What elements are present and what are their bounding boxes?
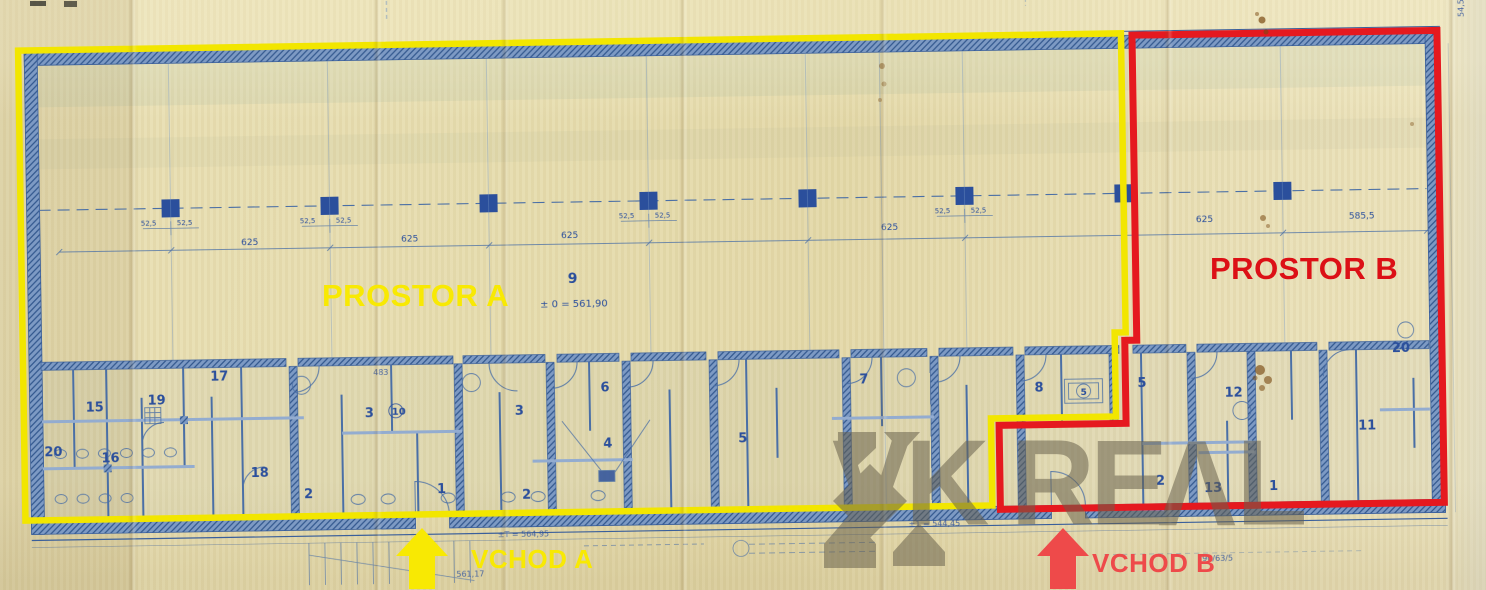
room-number: 17 bbox=[210, 369, 228, 384]
plan-note: ±1 = 544,45 bbox=[909, 519, 961, 529]
dimension-label: 52,5 bbox=[619, 212, 635, 220]
room-number: 3 bbox=[515, 404, 524, 419]
room-number: 12 bbox=[1224, 385, 1242, 400]
entrance-a-label: VCHOD A bbox=[471, 544, 593, 575]
room-number: 5 bbox=[738, 431, 747, 446]
room-number: 20 bbox=[44, 445, 62, 460]
station-label: 9 bbox=[568, 271, 578, 287]
dimension-label: 625 bbox=[401, 234, 418, 244]
room-number: 1 bbox=[437, 482, 446, 497]
dimension-label: 52,5 bbox=[141, 220, 157, 228]
dimension-label: 625 bbox=[241, 238, 258, 248]
room-number: 15 bbox=[86, 400, 104, 415]
room-number: 16 bbox=[101, 451, 119, 466]
paper-tint bbox=[37, 118, 1426, 170]
plan-note: 54,5 bbox=[1456, 0, 1465, 17]
column-dim-labels: 52,5 52,5 52,5 52,5 52,5 52,5 52,5 52,5 bbox=[141, 206, 987, 227]
dimension-label: 625 bbox=[1196, 215, 1213, 225]
dimension-label: 585,5 bbox=[1349, 211, 1375, 221]
entrance-b-label: VCHOD B bbox=[1092, 548, 1215, 579]
plan-note: 483 bbox=[373, 368, 388, 377]
room-number: 18 bbox=[251, 466, 269, 481]
room-number: 7 bbox=[859, 372, 868, 387]
room-number: 13 bbox=[1204, 481, 1222, 496]
room-number: 1 bbox=[1269, 479, 1278, 494]
room-number: 4 bbox=[603, 436, 612, 451]
column-axis-line bbox=[39, 189, 1427, 211]
room-number: 3 bbox=[365, 406, 374, 421]
dimension-label: 625 bbox=[561, 231, 578, 241]
region-b-label: PROSTOR B bbox=[1210, 251, 1398, 287]
blueprint-drawing: 9 ± 0 = 561,90 15 19 17 20 16 18 2 3 10 … bbox=[0, 0, 1486, 590]
room-number: 19 bbox=[147, 393, 165, 408]
room-number: 5 bbox=[1081, 388, 1087, 398]
room-number: 2 bbox=[522, 488, 531, 503]
dimension-label: 52,5 bbox=[935, 207, 951, 215]
dimension-label: 52,5 bbox=[300, 217, 316, 225]
plan-note: ±T = 564,95 bbox=[498, 529, 550, 539]
paper-tint bbox=[41, 349, 1432, 522]
level-note: ± 0 = 561,90 bbox=[540, 298, 608, 310]
scanned-floor-plan: 9 ± 0 = 561,90 15 19 17 20 16 18 2 3 10 … bbox=[0, 0, 1486, 590]
room-number: 10 bbox=[392, 407, 406, 418]
region-a-label: PROSTOR A bbox=[322, 278, 509, 314]
dimension-label: 52,5 bbox=[177, 219, 193, 227]
room-number: 6 bbox=[600, 380, 609, 395]
room-number: 20 bbox=[1392, 341, 1410, 356]
room-number: 5 bbox=[1137, 376, 1146, 391]
room-number: 2 bbox=[304, 487, 313, 502]
plan-tilt-group: 9 ± 0 = 561,90 15 19 17 20 16 18 2 3 10 … bbox=[17, 0, 1474, 590]
dimension-label: 52,5 bbox=[336, 216, 352, 224]
dimension-label: 52,5 bbox=[971, 206, 987, 214]
room-number: 8 bbox=[1034, 381, 1043, 396]
dimension-label: 625 bbox=[881, 223, 898, 233]
dimension-label: 52,5 bbox=[655, 211, 671, 219]
room-number: 11 bbox=[1358, 418, 1376, 433]
room-number: 2 bbox=[1156, 474, 1165, 489]
